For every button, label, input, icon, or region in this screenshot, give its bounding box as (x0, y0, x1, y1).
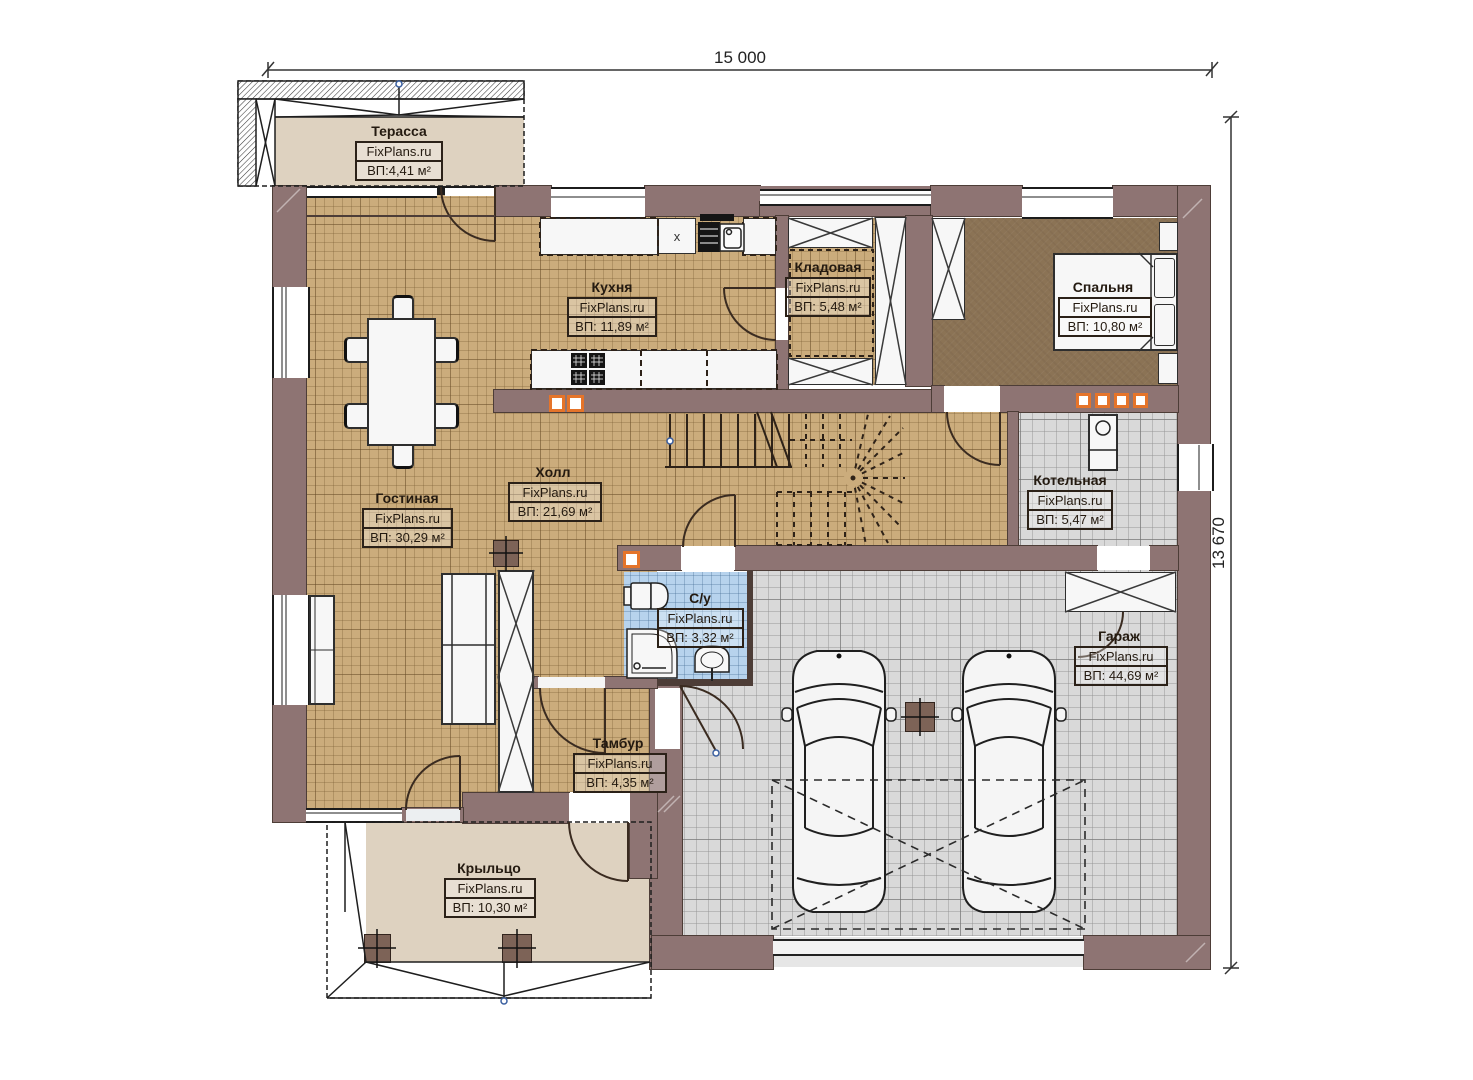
svg-text:15 000: 15 000 (714, 48, 766, 67)
svg-text:13 670: 13 670 (1209, 517, 1228, 569)
